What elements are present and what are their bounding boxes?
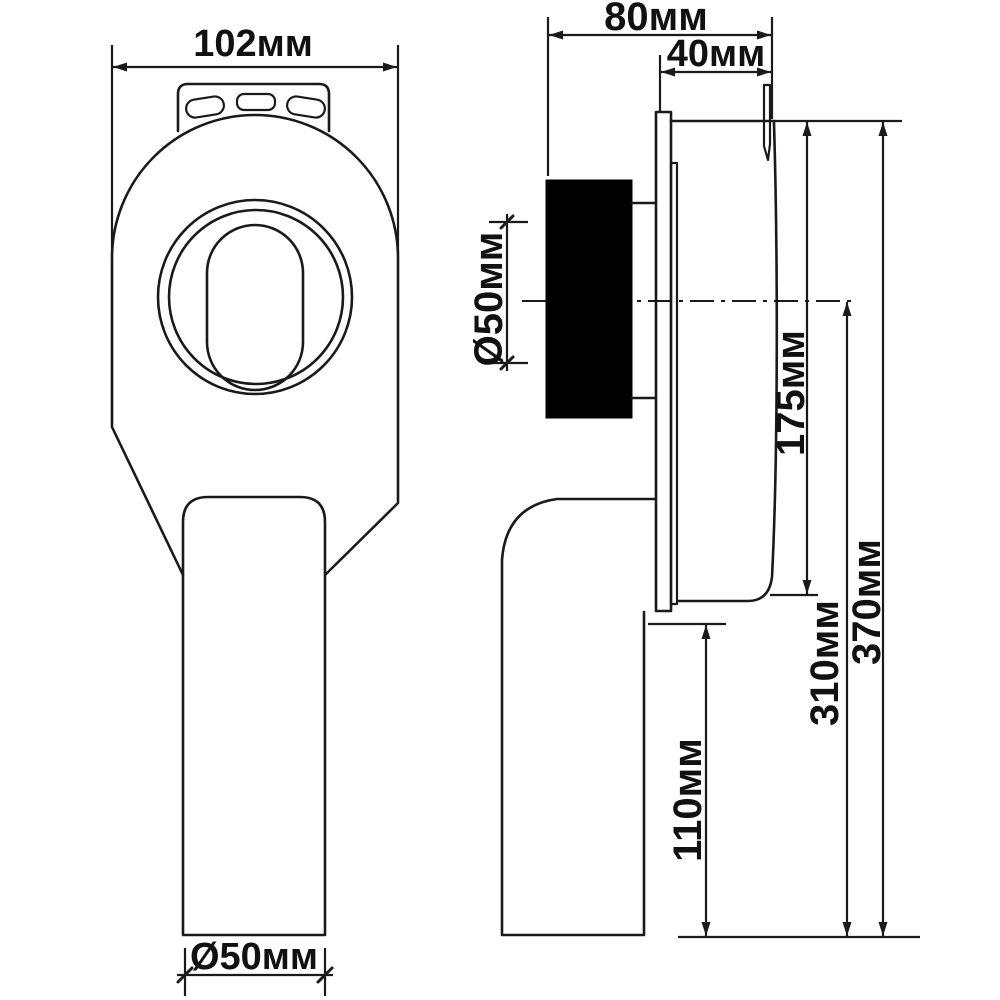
- dimension-inlet-diameter: Ø50мм: [467, 214, 528, 371]
- dimension-outlet-length: 110мм: [666, 625, 711, 936]
- inlet-gasket: [546, 180, 632, 418]
- front-opening-inner-circle: [169, 210, 343, 384]
- dimension-front-outlet: Ø50мм: [177, 936, 333, 996]
- side-view: 80мм 40мм Ø50мм 175мм: [467, 0, 920, 937]
- front-view: 102мм Ø50мм: [112, 23, 398, 996]
- total-height-label: 370мм: [845, 539, 889, 665]
- tab-slot-right: [286, 95, 326, 119]
- body-height-label: 175мм: [769, 330, 813, 456]
- side-body-back: [678, 123, 777, 601]
- dimension-total-height: 370мм: [845, 122, 889, 936]
- axis-to-bottom-label: 310мм: [803, 600, 847, 726]
- dimension-flange-offset: 40мм: [660, 33, 772, 112]
- side-bowl-outline: [502, 499, 656, 935]
- tab-slot-middle: [237, 94, 275, 110]
- flange-offset-label: 40мм: [667, 33, 766, 75]
- dimension-front-width: 102мм: [112, 23, 398, 255]
- side-mounting-tab: [764, 85, 770, 160]
- front-opening-outer-circle: [158, 200, 352, 394]
- front-outlet-pipe: [183, 497, 325, 935]
- technical-drawing-canvas: 102мм Ø50мм: [0, 0, 1000, 1000]
- arrow-left: [113, 63, 127, 72]
- front-outlet-label: Ø50мм: [190, 936, 318, 978]
- flange-disc: [656, 112, 671, 611]
- front-opening-oblong: [207, 225, 303, 390]
- outlet-length-label: 110мм: [666, 738, 710, 862]
- flange-inner-face: [671, 163, 677, 604]
- inlet-diameter-label: Ø50мм: [467, 232, 511, 367]
- tab-slot-left: [185, 95, 225, 119]
- front-body-outline: [112, 115, 398, 575]
- arrow-right: [383, 63, 397, 72]
- front-width-label: 102мм: [193, 23, 313, 65]
- drawing-svg: 102мм Ø50мм: [0, 0, 1000, 1000]
